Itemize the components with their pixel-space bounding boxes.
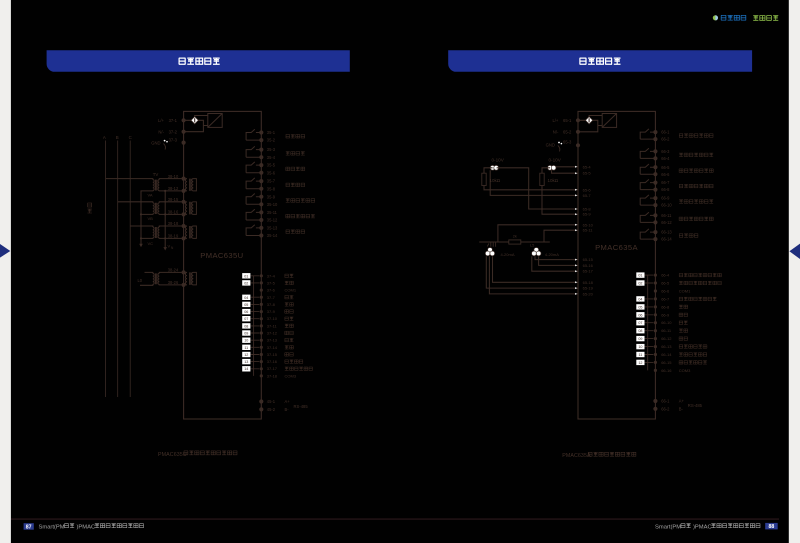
svg-text:38-10: 38-10 xyxy=(168,174,179,179)
svg-text:66-11: 66-11 xyxy=(661,328,672,333)
svg-text:65-16: 65-16 xyxy=(583,263,594,268)
svg-text:35-4: 35-4 xyxy=(267,155,276,160)
svg-text:38-15: 38-15 xyxy=(168,197,179,202)
svg-text:37-9: 37-9 xyxy=(267,309,276,314)
svg-text:65-9: 65-9 xyxy=(583,212,592,217)
svg-text:04: 04 xyxy=(638,297,642,301)
svg-text:VB: VB xyxy=(148,216,154,221)
svg-text:37-18: 37-18 xyxy=(267,373,278,378)
svg-text:66-12: 66-12 xyxy=(661,336,672,341)
svg-text:38-24: 38-24 xyxy=(168,267,179,272)
svg-text:RS-485: RS-485 xyxy=(294,404,309,409)
svg-text:35-9: 35-9 xyxy=(267,194,276,199)
svg-text:66-8: 66-8 xyxy=(661,187,670,192)
svg-text:66-10: 66-10 xyxy=(661,203,672,208)
svg-text:)PMAC: )PMAC xyxy=(693,524,712,530)
svg-text:02: 02 xyxy=(244,281,248,285)
svg-text:37-12: 37-12 xyxy=(267,331,278,336)
svg-text:66-6: 66-6 xyxy=(661,172,670,177)
svg-text:RS-485: RS-485 xyxy=(688,403,703,408)
svg-text:13: 13 xyxy=(244,360,248,364)
svg-text:65-5: 65-5 xyxy=(583,171,592,176)
svg-text:66-7: 66-7 xyxy=(661,296,670,301)
svg-text:35-12: 35-12 xyxy=(267,218,278,223)
svg-text:65-7: 65-7 xyxy=(583,193,592,198)
svg-text:88: 88 xyxy=(769,524,775,530)
svg-text:38-18: 38-18 xyxy=(168,221,179,226)
svg-text:66-12: 66-12 xyxy=(661,220,672,225)
svg-text:66-11: 66-11 xyxy=(661,213,672,218)
svg-text:37-17: 37-17 xyxy=(267,366,278,371)
svg-text:VC: VC xyxy=(148,241,154,246)
svg-text:66-5: 66-5 xyxy=(661,281,670,286)
svg-text:02: 02 xyxy=(638,282,642,286)
svg-text:A: A xyxy=(103,135,106,140)
svg-text:07: 07 xyxy=(638,321,642,325)
svg-text:A+: A+ xyxy=(679,399,685,404)
svg-text:GND: GND xyxy=(151,140,160,145)
svg-text:01: 01 xyxy=(638,274,642,278)
svg-text:66-14: 66-14 xyxy=(661,237,672,242)
svg-text:L0: L0 xyxy=(138,278,143,283)
svg-text:COM3: COM3 xyxy=(679,368,691,373)
svg-text:66-13: 66-13 xyxy=(661,230,672,235)
svg-text:66-4: 66-4 xyxy=(661,273,670,278)
svg-text:66-5: 66-5 xyxy=(661,165,670,170)
svg-text:66-4: 66-4 xyxy=(661,156,670,161)
svg-text:65-17: 65-17 xyxy=(583,269,594,274)
svg-text:87: 87 xyxy=(26,525,32,531)
svg-text:65-15: 65-15 xyxy=(583,257,594,262)
svg-text:35-1: 35-1 xyxy=(267,130,276,135)
svg-text:08: 08 xyxy=(244,324,248,328)
svg-text:37-3: 37-3 xyxy=(169,138,178,143)
svg-text:08: 08 xyxy=(638,329,642,333)
svg-text:45-1: 45-1 xyxy=(267,399,276,404)
svg-text:66-16: 66-16 xyxy=(661,368,672,373)
svg-text:05: 05 xyxy=(244,303,248,307)
svg-text:GND: GND xyxy=(546,142,555,147)
svg-text:38-16: 38-16 xyxy=(168,210,179,215)
svg-text:Smart(PM: Smart(PM xyxy=(39,524,65,530)
svg-text:37-8: 37-8 xyxy=(267,302,276,307)
svg-text:06: 06 xyxy=(244,310,248,314)
svg-text:09: 09 xyxy=(638,337,642,341)
svg-text:2k: 2k xyxy=(513,233,517,238)
svg-text:38-26: 38-26 xyxy=(168,280,179,285)
svg-text:38-12: 38-12 xyxy=(168,186,179,191)
svg-text:37-6: 37-6 xyxy=(267,288,276,293)
svg-text:66-15: 66-15 xyxy=(661,360,672,365)
svg-text:11: 11 xyxy=(244,346,248,350)
svg-text:37-13: 37-13 xyxy=(267,338,278,343)
svg-text:37-11: 37-11 xyxy=(267,323,278,328)
svg-text:B: B xyxy=(116,135,119,140)
svg-text:L/+: L/+ xyxy=(158,118,164,123)
svg-text:37-15: 37-15 xyxy=(267,352,278,357)
svg-text:65-3: 65-3 xyxy=(563,139,572,144)
svg-text:37-16: 37-16 xyxy=(267,359,278,364)
svg-text:37-4: 37-4 xyxy=(267,273,276,278)
svg-text:65-1: 65-1 xyxy=(563,118,572,123)
svg-text:PMAC635A: PMAC635A xyxy=(595,243,638,252)
svg-text:06: 06 xyxy=(638,313,642,317)
svg-text:A+: A+ xyxy=(285,399,291,404)
svg-text:35-13: 35-13 xyxy=(267,226,278,231)
svg-text:66-10: 66-10 xyxy=(661,320,672,325)
svg-text:L5: L5 xyxy=(530,243,534,248)
svg-text:65-20: 65-20 xyxy=(583,291,594,296)
svg-text:66-2: 66-2 xyxy=(661,137,670,142)
svg-text:10kΩ: 10kΩ xyxy=(548,178,559,183)
svg-text:B-: B- xyxy=(679,407,684,412)
svg-text:14: 14 xyxy=(244,367,248,371)
svg-text:PMAC635U: PMAC635U xyxy=(200,251,243,260)
svg-text:66-8: 66-8 xyxy=(661,304,670,309)
svg-text:11: 11 xyxy=(638,353,642,357)
svg-text:37-14: 37-14 xyxy=(267,345,278,350)
svg-text:10: 10 xyxy=(244,339,248,343)
svg-text:12: 12 xyxy=(244,353,248,357)
svg-text:65-11: 65-11 xyxy=(583,228,594,233)
svg-text:65-10: 65-10 xyxy=(583,222,594,227)
svg-text:66-7: 66-7 xyxy=(661,180,670,185)
svg-text:VA: VA xyxy=(148,193,153,198)
svg-text:12: 12 xyxy=(638,361,642,365)
svg-text:35-8: 35-8 xyxy=(267,186,276,191)
svg-text:37-1: 37-1 xyxy=(169,118,178,123)
svg-text:65-4: 65-4 xyxy=(583,164,592,169)
svg-text:35-10: 35-10 xyxy=(267,202,278,207)
svg-text:N/-: N/- xyxy=(158,129,164,134)
svg-text:66-3: 66-3 xyxy=(661,149,670,154)
svg-text:35-14: 35-14 xyxy=(267,233,278,238)
svg-text:35-2: 35-2 xyxy=(267,138,276,143)
svg-text:35-7: 35-7 xyxy=(267,179,276,184)
svg-text:66-14: 66-14 xyxy=(661,352,672,357)
svg-text:4-20mA: 4-20mA xyxy=(545,252,559,257)
svg-text:PMAC635U: PMAC635U xyxy=(158,452,187,458)
svg-text:66-6: 66-6 xyxy=(661,289,670,294)
svg-text:05: 05 xyxy=(638,305,642,309)
svg-text:0-10V: 0-10V xyxy=(549,157,562,162)
svg-text:Smart(PM: Smart(PM xyxy=(655,524,681,530)
svg-text:COM1: COM1 xyxy=(285,288,297,293)
svg-text:COM1: COM1 xyxy=(679,288,691,293)
svg-text:L/+: L/+ xyxy=(552,118,558,123)
svg-text:0-10V: 0-10V xyxy=(492,157,505,162)
svg-text:37-5: 37-5 xyxy=(267,280,276,285)
svg-text:66-9: 66-9 xyxy=(661,196,670,201)
svg-text:66-9: 66-9 xyxy=(661,312,670,317)
svg-text:38-19: 38-19 xyxy=(168,234,179,239)
svg-text:65-6: 65-6 xyxy=(583,187,592,192)
svg-text:C: C xyxy=(129,135,132,140)
svg-text:66-1: 66-1 xyxy=(661,399,670,404)
svg-text:4-20mA: 4-20mA xyxy=(501,252,515,257)
svg-text:35-6: 35-6 xyxy=(267,170,276,175)
svg-text:04: 04 xyxy=(244,296,248,300)
svg-text:35-5: 35-5 xyxy=(267,163,276,168)
svg-text:66-1: 66-1 xyxy=(661,130,670,135)
svg-text:10: 10 xyxy=(638,345,642,349)
svg-text:)PMAC: )PMAC xyxy=(77,524,96,530)
svg-text:65-19: 65-19 xyxy=(583,286,594,291)
svg-text:37-2: 37-2 xyxy=(169,129,178,134)
svg-text:35-11: 35-11 xyxy=(267,210,278,215)
svg-text:10kΩ: 10kΩ xyxy=(490,178,501,183)
svg-text:37-7: 37-7 xyxy=(267,295,276,300)
svg-text:66-13: 66-13 xyxy=(661,344,672,349)
svg-text:B-: B- xyxy=(285,407,290,412)
svg-text:TV: TV xyxy=(153,172,159,177)
svg-text:PMAC635A: PMAC635A xyxy=(562,453,591,459)
svg-text:01: 01 xyxy=(244,274,248,278)
svg-text:COM3: COM3 xyxy=(285,373,297,378)
svg-text:65-18: 65-18 xyxy=(583,280,594,285)
svg-text:65-2: 65-2 xyxy=(563,130,572,135)
svg-text:09: 09 xyxy=(244,332,248,336)
svg-text:35-3: 35-3 xyxy=(267,147,276,152)
svg-text:N/-: N/- xyxy=(553,130,559,135)
svg-text:66-2: 66-2 xyxy=(661,407,670,412)
svg-text:45-2: 45-2 xyxy=(267,407,276,412)
svg-text:37-10: 37-10 xyxy=(267,316,278,321)
svg-text:07: 07 xyxy=(244,317,248,321)
